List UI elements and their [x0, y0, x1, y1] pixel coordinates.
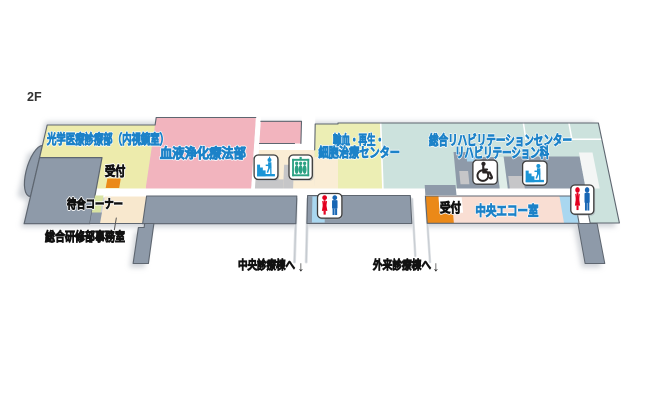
svg-text:光学医療診療部（内視鏡室）: 光学医療診療部（内視鏡室） [46, 131, 169, 147]
svg-text:↓: ↓ [298, 258, 305, 274]
svg-text:受付: 受付 [440, 200, 461, 215]
svg-text:↓: ↓ [433, 258, 440, 274]
svg-text:細胞治療センター: 細胞治療センター [319, 144, 401, 160]
svg-text:受付: 受付 [105, 164, 126, 179]
svg-text:中央エコー室: 中央エコー室 [475, 203, 538, 219]
svg-text:2F: 2F [27, 90, 42, 104]
svg-text:外来診療棟へ: 外来診療棟へ [372, 257, 431, 272]
svg-text:待合コーナー: 待合コーナー [67, 197, 123, 211]
svg-text:血液浄化療法部: 血液浄化療法部 [160, 145, 246, 161]
svg-text:総合研修部事務室: 総合研修部事務室 [45, 229, 125, 244]
svg-text:中央診療棟へ: 中央診療棟へ [238, 257, 295, 272]
svg-text:リハビリテーション科: リハビリテーション科 [455, 145, 549, 161]
